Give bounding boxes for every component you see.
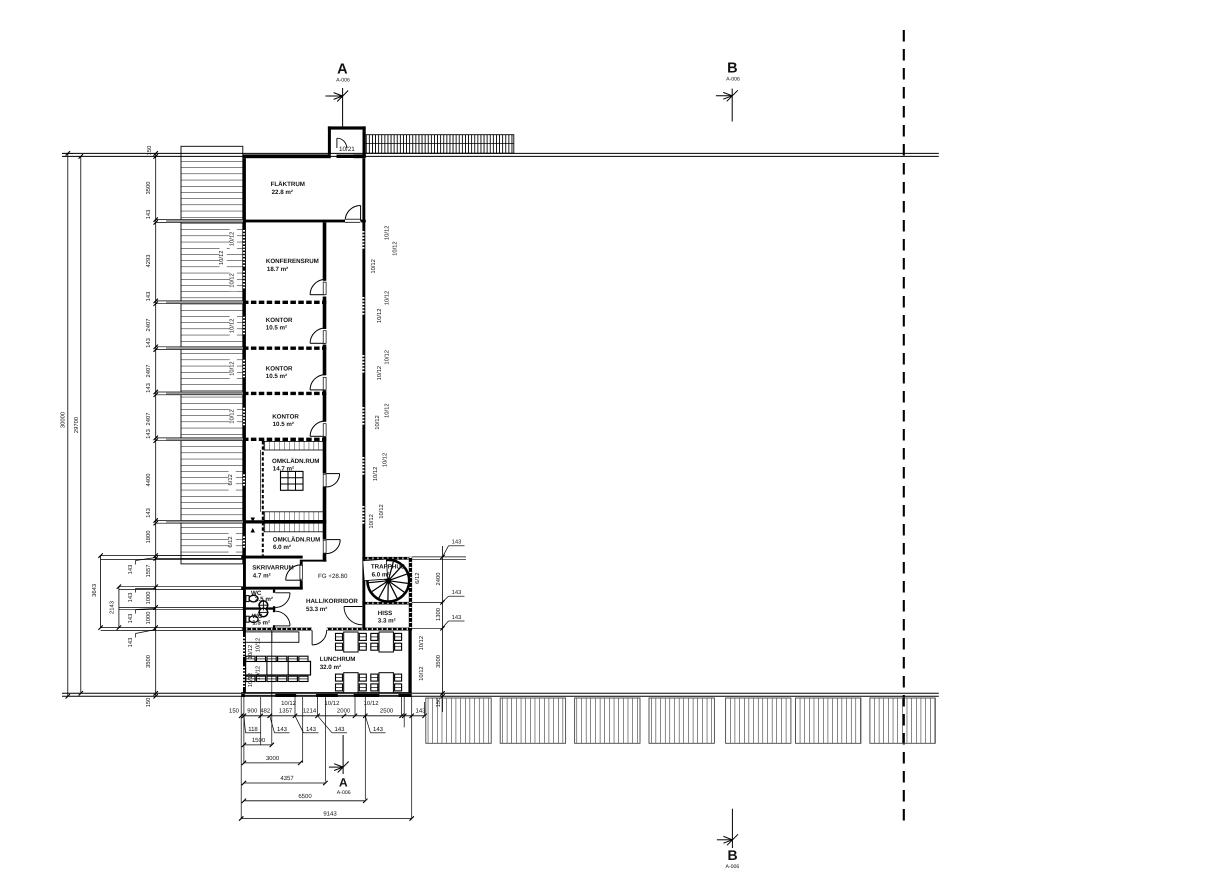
svg-text:14.7 m²: 14.7 m² xyxy=(273,466,294,473)
svg-text:1000: 1000 xyxy=(145,592,152,605)
svg-text:10.5 m²: 10.5 m² xyxy=(273,421,294,428)
svg-text:3643: 3643 xyxy=(91,584,98,597)
svg-text:32.0 m²: 32.0 m² xyxy=(320,664,341,671)
svg-text:OMKLÄDN.RUM: OMKLÄDN.RUM xyxy=(272,457,319,465)
svg-text:10/12: 10/12 xyxy=(228,232,235,247)
svg-text:143: 143 xyxy=(452,539,462,546)
svg-text:10.5 m²: 10.5 m² xyxy=(266,325,287,332)
svg-text:143: 143 xyxy=(277,726,288,733)
svg-text:OMKLÄDN.RUM: OMKLÄDN.RUM xyxy=(273,536,320,544)
svg-text:482: 482 xyxy=(260,708,271,715)
svg-text:10/12: 10/12 xyxy=(324,700,340,707)
svg-text:1800: 1800 xyxy=(145,531,152,544)
svg-text:A-006: A-006 xyxy=(725,864,739,870)
svg-text:143: 143 xyxy=(452,589,462,596)
svg-text:FLÄKTRUM: FLÄKTRUM xyxy=(271,180,305,188)
svg-text:4357: 4357 xyxy=(280,775,294,782)
svg-text:1357: 1357 xyxy=(279,708,293,715)
svg-text:10/12: 10/12 xyxy=(378,504,385,519)
svg-text:2500: 2500 xyxy=(380,708,394,715)
svg-text:2.5 m²: 2.5 m² xyxy=(255,596,273,603)
svg-text:22.8 m²: 22.8 m² xyxy=(272,189,293,196)
svg-text:2143: 2143 xyxy=(108,601,115,614)
svg-text:2000: 2000 xyxy=(337,708,351,715)
svg-text:150: 150 xyxy=(145,698,152,708)
svg-text:10/12: 10/12 xyxy=(376,366,383,381)
svg-text:KONTOR: KONTOR xyxy=(266,317,293,324)
svg-text:10/12: 10/12 xyxy=(384,403,391,418)
svg-text:2407: 2407 xyxy=(145,413,152,426)
svg-text:10/12: 10/12 xyxy=(418,636,425,651)
svg-text:3500: 3500 xyxy=(145,655,152,668)
svg-text:143: 143 xyxy=(145,429,152,439)
svg-text:6/12: 6/12 xyxy=(227,474,234,485)
svg-text:10.5 m²: 10.5 m² xyxy=(266,373,287,380)
svg-text:10/12: 10/12 xyxy=(255,638,262,653)
svg-text:10/12: 10/12 xyxy=(370,259,377,274)
svg-text:143: 143 xyxy=(306,726,317,733)
svg-text:2407: 2407 xyxy=(145,319,152,332)
svg-text:TRAPPHUS: TRAPPHUS xyxy=(371,564,405,571)
svg-text:1000: 1000 xyxy=(145,612,152,625)
svg-text:2407: 2407 xyxy=(145,365,152,378)
svg-text:4400: 4400 xyxy=(145,474,152,487)
svg-text:A: A xyxy=(337,62,348,78)
svg-text:10/12: 10/12 xyxy=(384,350,391,365)
svg-text:HALL/KORRIDOR: HALL/KORRIDOR xyxy=(306,598,358,605)
svg-text:1214: 1214 xyxy=(303,708,317,715)
svg-text:143: 143 xyxy=(127,638,134,648)
svg-text:10/21: 10/21 xyxy=(339,146,355,153)
svg-text:1300: 1300 xyxy=(435,608,442,621)
svg-text:10/12: 10/12 xyxy=(384,226,391,241)
svg-text:4293: 4293 xyxy=(145,255,152,268)
svg-text:4.7 m²: 4.7 m² xyxy=(253,573,271,580)
svg-text:SKRIVARRUM: SKRIVARRUM xyxy=(252,565,293,572)
svg-text:10/12: 10/12 xyxy=(255,666,262,681)
svg-text:6/12: 6/12 xyxy=(414,573,421,584)
svg-text:3500: 3500 xyxy=(435,655,442,668)
svg-text:10/12: 10/12 xyxy=(364,700,380,707)
svg-text:10/12: 10/12 xyxy=(376,309,383,324)
svg-text:A-006: A-006 xyxy=(726,77,740,83)
svg-text:143: 143 xyxy=(452,614,462,621)
svg-text:150: 150 xyxy=(146,146,153,156)
svg-text:A-006: A-006 xyxy=(337,790,351,796)
svg-text:10/12: 10/12 xyxy=(281,700,297,707)
svg-text:10/12: 10/12 xyxy=(368,514,375,529)
svg-text:HISS: HISS xyxy=(378,610,392,617)
svg-text:143: 143 xyxy=(415,708,426,715)
svg-text:143: 143 xyxy=(127,593,134,603)
svg-text:10/12: 10/12 xyxy=(228,409,235,424)
svg-text:10/12: 10/12 xyxy=(218,251,225,266)
svg-text:10/12: 10/12 xyxy=(228,361,235,376)
svg-text:6.0 m²: 6.0 m² xyxy=(372,572,390,579)
svg-text:143: 143 xyxy=(127,614,134,624)
svg-text:A-006: A-006 xyxy=(336,78,350,84)
svg-text:LUNCHRUM: LUNCHRUM xyxy=(320,656,356,663)
svg-text:B: B xyxy=(727,61,737,77)
svg-text:3500: 3500 xyxy=(145,182,152,195)
svg-text:1.5 m²: 1.5 m² xyxy=(252,620,270,627)
svg-text:A: A xyxy=(339,776,348,790)
svg-text:3.3 m²: 3.3 m² xyxy=(378,618,396,625)
svg-text:18.7 m²: 18.7 m² xyxy=(267,266,288,273)
svg-text:10/12: 10/12 xyxy=(384,291,391,306)
svg-text:6500: 6500 xyxy=(298,793,312,800)
svg-text:29700: 29700 xyxy=(73,417,80,433)
svg-text:900: 900 xyxy=(247,708,258,715)
svg-text:10/12: 10/12 xyxy=(382,453,389,468)
svg-text:KONTOR: KONTOR xyxy=(266,366,293,373)
svg-text:10/12: 10/12 xyxy=(374,415,381,430)
svg-text:3000: 3000 xyxy=(266,755,280,762)
svg-text:10/12: 10/12 xyxy=(228,273,235,288)
svg-text:143: 143 xyxy=(145,508,152,518)
svg-text:143: 143 xyxy=(145,383,152,393)
svg-text:B: B xyxy=(728,847,738,863)
svg-text:1500: 1500 xyxy=(252,737,266,744)
svg-text:143: 143 xyxy=(145,292,152,302)
svg-text:10/12: 10/12 xyxy=(228,319,235,334)
svg-text:10/12: 10/12 xyxy=(372,467,379,482)
svg-text:143: 143 xyxy=(127,565,134,575)
svg-text:10/12: 10/12 xyxy=(392,241,399,256)
svg-text:1557: 1557 xyxy=(146,565,152,578)
svg-text:10/12: 10/12 xyxy=(247,673,254,688)
svg-text:53.3 m²: 53.3 m² xyxy=(306,606,327,613)
svg-text:6/12: 6/12 xyxy=(227,536,234,547)
svg-text:143: 143 xyxy=(145,338,152,348)
svg-text:10/12: 10/12 xyxy=(418,666,425,681)
svg-text:2400: 2400 xyxy=(435,573,442,586)
svg-text:118: 118 xyxy=(248,726,258,733)
svg-text:143: 143 xyxy=(373,726,384,733)
svg-text:FG +28.80: FG +28.80 xyxy=(318,573,348,580)
svg-text:10/12: 10/12 xyxy=(247,645,254,660)
svg-text:KONFERENSRUM: KONFERENSRUM xyxy=(266,258,319,265)
svg-text:150: 150 xyxy=(229,708,240,715)
svg-text:30000: 30000 xyxy=(60,412,67,428)
svg-text:9143: 9143 xyxy=(323,811,337,818)
svg-text:KONTOR: KONTOR xyxy=(272,414,299,421)
svg-text:6.0 m²: 6.0 m² xyxy=(273,544,291,551)
svg-text:143: 143 xyxy=(145,210,152,220)
svg-text:143: 143 xyxy=(334,726,345,733)
